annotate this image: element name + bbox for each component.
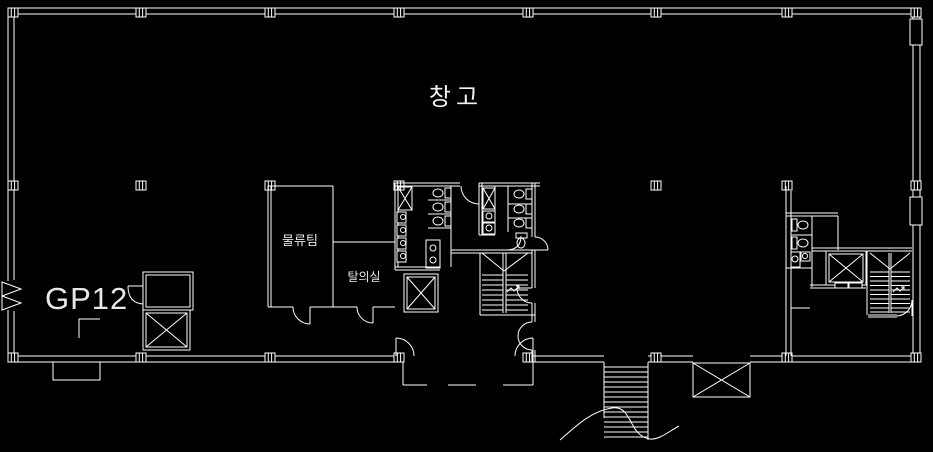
window-right-top [910, 19, 922, 45]
door-arc [293, 307, 310, 324]
right-restroom [786, 213, 838, 308]
sink-counter [426, 240, 440, 268]
left-elevator-shaft [143, 310, 190, 350]
door-arc [357, 307, 373, 323]
mens-toilet-stalls [428, 188, 451, 228]
counter-line [79, 319, 100, 338]
gp12-label: GP12 [45, 281, 128, 316]
window-right-mid [910, 197, 922, 225]
door-arc [535, 237, 548, 250]
break-line [560, 408, 679, 440]
double-door-arcs [518, 322, 532, 350]
left-elevator-lobby [128, 272, 193, 310]
duct-shaft [398, 187, 412, 210]
door-arc [461, 186, 479, 204]
logistics-room: 물류팀 탈의실 [268, 186, 395, 324]
exterior-hatch [693, 363, 750, 397]
exterior-stair-down [560, 362, 679, 440]
womens-shaft-sinks [483, 188, 495, 234]
double-swing-door-left [2, 282, 21, 310]
loading-dock [53, 362, 100, 380]
right-elevator [810, 251, 866, 288]
column-grid [8, 8, 921, 362]
central-elevator [404, 274, 438, 312]
entrance-vestibule [403, 362, 533, 385]
right-stair [867, 251, 912, 317]
floor-plan-canvas: 창고 GP12 물류팀 탈의실 [0, 0, 933, 452]
logistics-label: 물류팀 [282, 233, 318, 248]
door-arc [128, 286, 143, 304]
dressing-room-label: 탈의실 [347, 270, 380, 284]
warehouse-label: 창고 [429, 84, 483, 111]
gp12-zone: GP12 [2, 272, 193, 380]
right-core [786, 186, 912, 356]
womens-toilet-stalls [506, 186, 532, 250]
central-stair [480, 253, 535, 315]
floor-plan-drawing: 창고 GP12 물류팀 탈의실 [0, 0, 933, 452]
